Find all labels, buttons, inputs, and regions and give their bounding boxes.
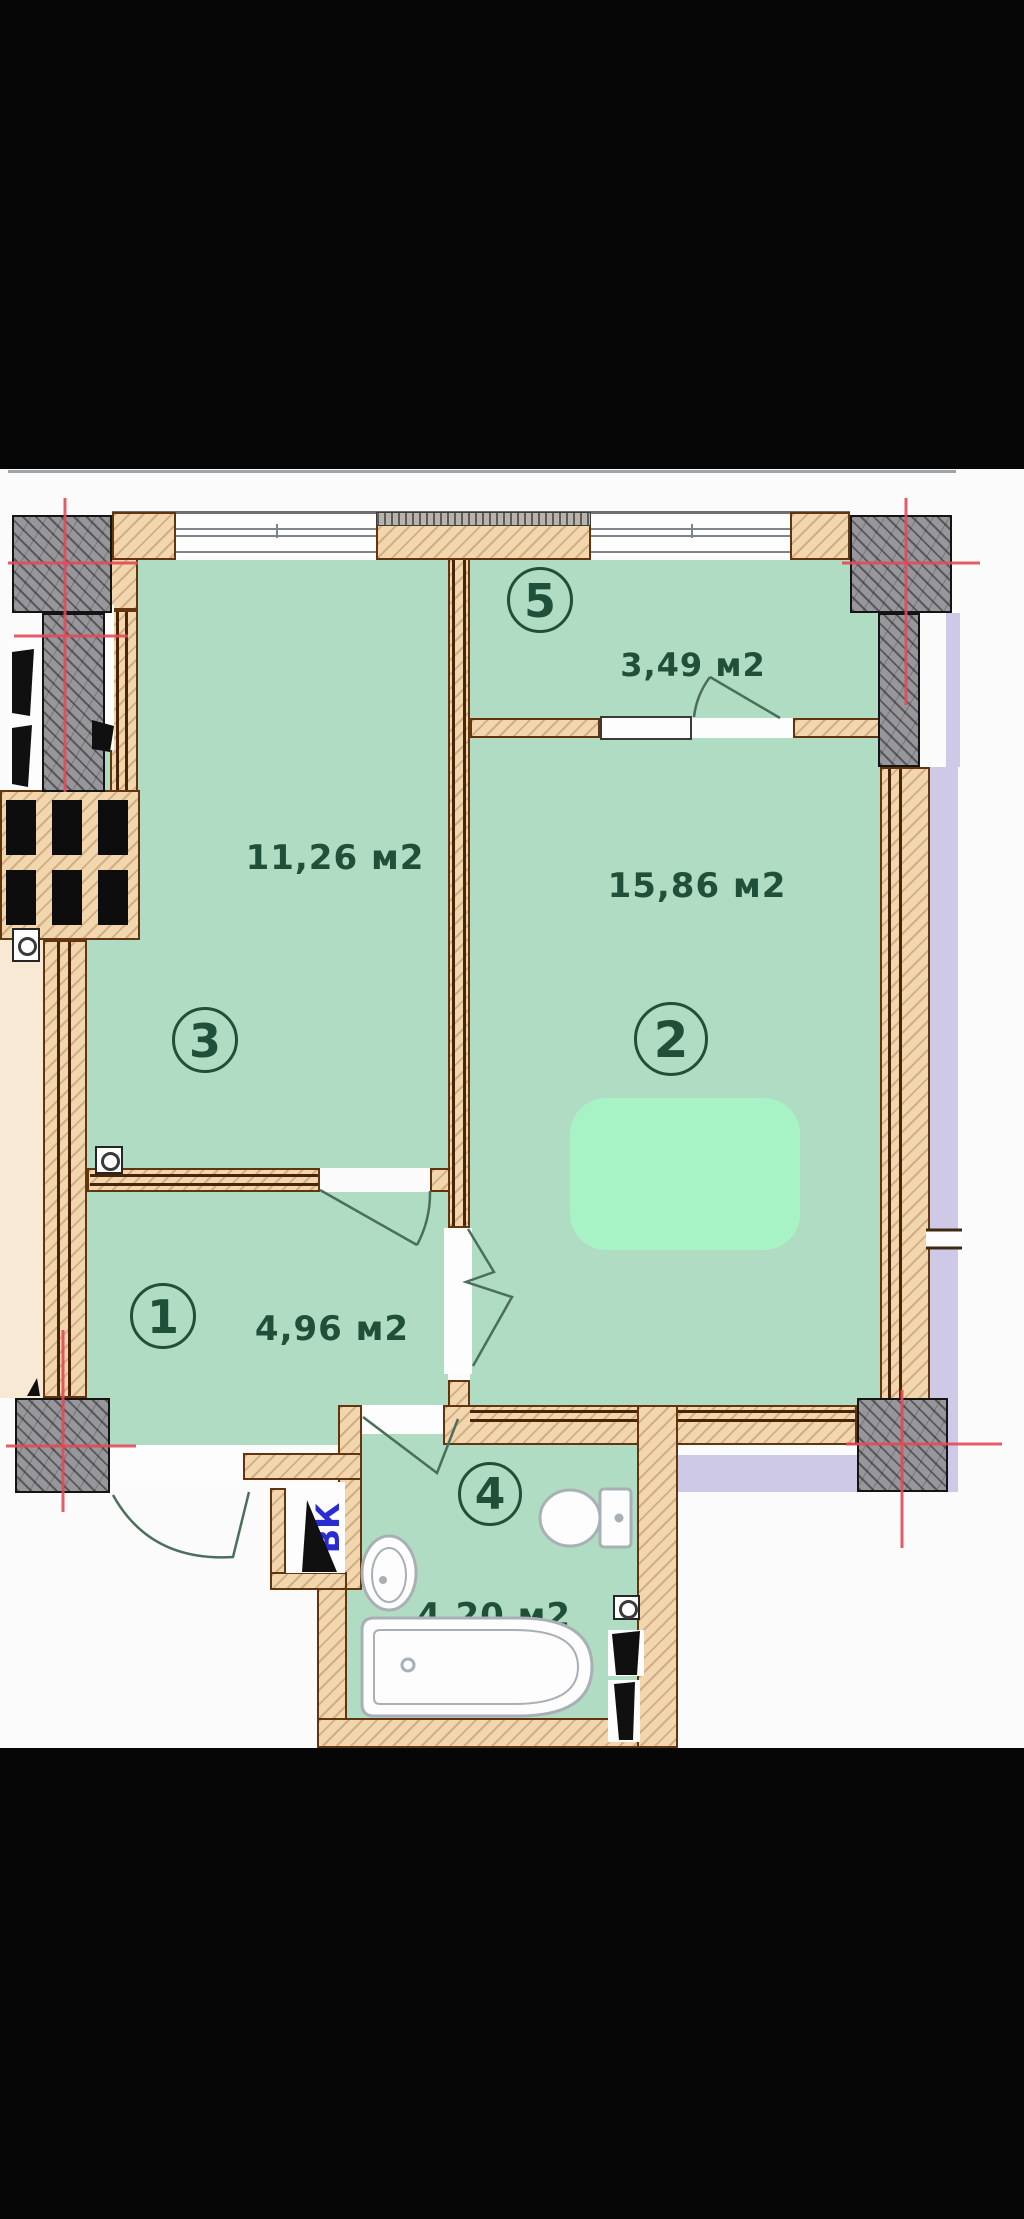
window-niche [8, 640, 42, 790]
column-top-left-stem [42, 613, 105, 792]
wall-room1-bottom [243, 1453, 362, 1480]
wall-segment [790, 512, 850, 560]
wall-double-line [90, 1174, 318, 1186]
column-bottom-right [857, 1398, 948, 1492]
window-north-2 [591, 516, 790, 556]
shaft-frame [270, 1572, 347, 1590]
wall-double-line [57, 942, 71, 1396]
room-4-number-badge: 4 [458, 1462, 522, 1526]
door-opening-room1-room2 [444, 1228, 472, 1374]
column-bottom-left [15, 1398, 110, 1493]
wall-segment [112, 512, 176, 560]
vent-shaft-label: ВК [298, 1496, 358, 1560]
bed [570, 1098, 800, 1250]
scan-line [8, 470, 956, 473]
outside-band-right-thin [946, 613, 960, 767]
column-top-right [850, 515, 952, 613]
masonry-opening [98, 870, 128, 925]
masonry-opening [52, 870, 82, 925]
wall-double-line [116, 612, 128, 790]
wall-double-line [888, 769, 902, 1443]
masonry-opening [98, 800, 128, 855]
door-opening-bathroom [362, 1405, 443, 1434]
door-opening-room5 [692, 718, 793, 738]
wall-bath-right [637, 1405, 678, 1748]
outside-band-bottom [678, 1455, 857, 1492]
room-5-area-label: 3,49 м2 [563, 646, 823, 684]
floor-plan-screenshot: 3 11,26 м2 5 3,49 м2 2 15,86 м2 1 4,96 м… [0, 0, 1024, 2219]
column-top-left [12, 515, 112, 613]
masonry-opening [6, 800, 36, 855]
masonry-opening [6, 870, 36, 925]
room-4-area-label: 4,20 м2 [364, 1596, 624, 1636]
wall-room3-room1 [430, 1168, 450, 1192]
masonry-opening [52, 800, 82, 855]
bottom-letterbox-bar [0, 1748, 1024, 2219]
window-room5 [600, 716, 692, 740]
entry-door-opening [110, 1445, 243, 1481]
window-north-1 [176, 516, 376, 556]
room-5-number-badge: 5 [507, 567, 573, 633]
wall-double-line [452, 560, 466, 1226]
adjacent-area-band [0, 940, 43, 1398]
wall-room5-divider [470, 718, 600, 738]
room-2-number-badge: 2 [634, 1002, 708, 1076]
column-top-right-stem [878, 613, 920, 767]
socket-box [95, 1146, 123, 1174]
wall-pier-edge [376, 512, 591, 526]
room-2-area-label: 15,86 м2 [557, 866, 837, 906]
duct-niche [608, 1630, 644, 1676]
room-1-number-badge: 1 [130, 1283, 196, 1349]
room-3-area-label: 11,26 м2 [195, 838, 475, 878]
wall-gap-right [926, 1231, 962, 1248]
duct-niche [608, 1680, 640, 1742]
socket-box [12, 928, 40, 962]
outside-band-right [930, 767, 958, 1492]
room-3-number-badge: 3 [172, 1007, 238, 1073]
wall-room5-divider [793, 718, 880, 738]
top-letterbox-bar [0, 0, 1024, 469]
shaft-frame [270, 1488, 286, 1574]
room-1-area-label: 4,96 м2 [192, 1309, 472, 1349]
